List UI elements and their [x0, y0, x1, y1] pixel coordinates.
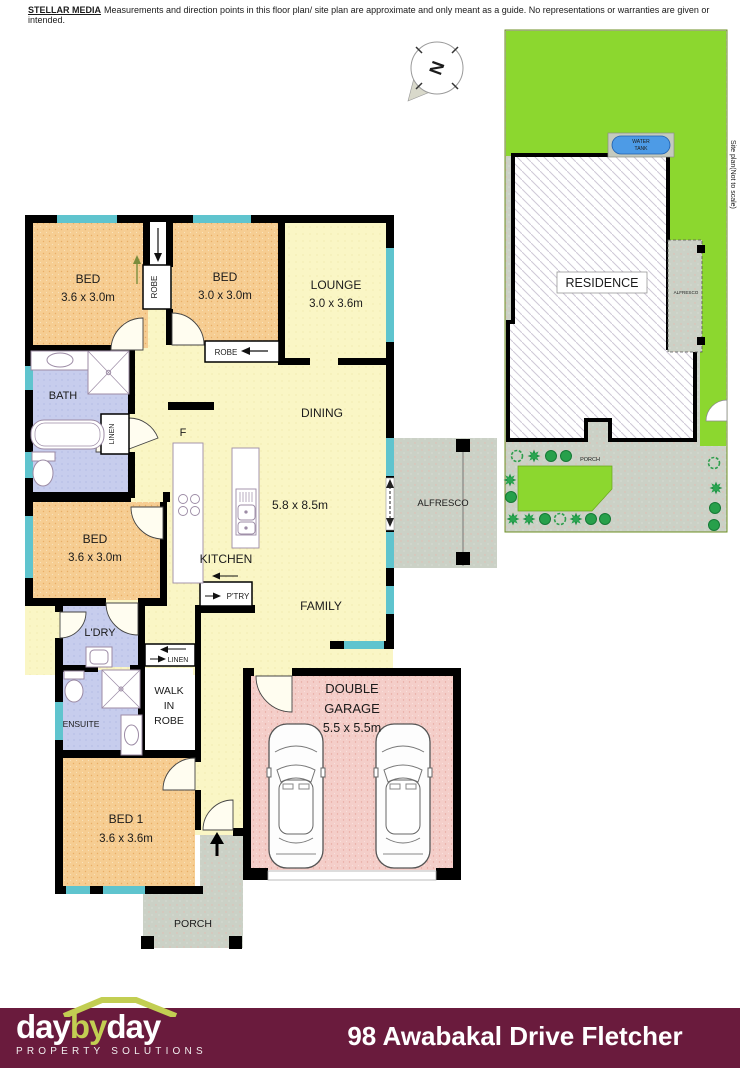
robe-label-2: ROBE	[215, 348, 238, 357]
garage-door	[268, 871, 436, 880]
wir-label-2: IN	[164, 700, 175, 712]
plant-icon	[546, 451, 557, 462]
site-residence-label: RESIDENCE	[566, 276, 639, 290]
plant-icon	[600, 514, 611, 525]
pantry-label: P'TRY	[227, 592, 250, 601]
fridge-label: F	[180, 427, 187, 439]
robe-label-1: ROBE	[150, 276, 159, 299]
logo-tagline: PROPERTY SOLUTIONS	[16, 1046, 207, 1057]
plant-icon	[561, 451, 572, 462]
garage-label-1: DOUBLE	[325, 681, 379, 696]
garage-dims: 5.5 x 5.5m	[323, 721, 381, 735]
slider-door	[386, 478, 394, 530]
family-label: FAMILY	[300, 599, 342, 613]
site-alfresco: ALFRESCO	[668, 240, 705, 352]
porch-label: PORCH	[174, 918, 212, 930]
kitchen-label: KITCHEN	[200, 552, 253, 566]
site-plan: RESIDENCE WATER TANK ALFRESCO PORCH	[501, 30, 736, 532]
wir-label-3: ROBE	[154, 715, 184, 727]
linen-label-1: LINEN	[109, 424, 116, 445]
wir-label-1: WALK	[154, 685, 183, 697]
garage-label-2: GARAGE	[324, 701, 380, 716]
water-tank-label-2: TANK	[635, 146, 649, 152]
property-address: 98 Awabakal Drive Fletcher	[290, 1021, 740, 1052]
lounge-label: LOUNGE	[311, 278, 362, 292]
bed3-dims: 3.6 x 3.0m	[68, 552, 122, 564]
plant-icon	[540, 514, 551, 525]
car-icon	[374, 724, 432, 868]
plant-icon	[586, 514, 597, 525]
site-lawn-front	[518, 466, 612, 511]
dining-label: DINING	[301, 406, 343, 420]
bed-tm-label: BED	[213, 270, 238, 284]
roof-icon	[60, 997, 190, 1017]
bed-tl-dims: 3.6 x 3.0m	[61, 292, 115, 304]
bed-tl-label: BED	[76, 272, 101, 286]
water-tank-label-1: WATER	[632, 139, 650, 145]
site-caption: Site plan(Not to scale)	[729, 140, 736, 209]
plant-icon	[506, 492, 517, 503]
linen-label-2: LINEN	[168, 657, 189, 664]
bed1-dims: 3.6 x 3.6m	[99, 833, 153, 845]
footer: daybyday PROPERTY SOLUTIONS 98 Awabakal …	[0, 1008, 740, 1068]
plant-icon	[709, 520, 720, 531]
car-icon	[267, 724, 325, 868]
floor-plan-flyer: STELLAR MEDIAMeasurements and direction …	[0, 0, 740, 1080]
agency-logo: daybyday PROPERTY SOLUTIONS	[16, 1010, 207, 1057]
lounge-dims: 3.0 x 3.6m	[309, 298, 363, 310]
bed1-label: BED 1	[109, 812, 144, 826]
ensuite-label: ENSUITE	[63, 719, 100, 729]
bath-label: BATH	[49, 390, 78, 402]
site-porch-label: PORCH	[580, 457, 600, 463]
site-residence: RESIDENCE	[508, 155, 695, 440]
laundry-label: L'DRY	[84, 627, 116, 639]
site-alfresco-label: ALFRESCO	[674, 290, 699, 295]
plant-icon	[710, 503, 721, 514]
plan-canvas: N RESIDENCE WATER TANK	[0, 0, 740, 1080]
bed3-label: BED	[83, 532, 108, 546]
alfresco-label: ALFRESCO	[417, 498, 468, 509]
floor-plan: ROBE ROBE LINEN LINEN P'TRY	[25, 215, 497, 949]
living-dims-label: 5.8 x 8.5m	[272, 498, 328, 512]
site-water-tank: WATER TANK	[608, 133, 674, 157]
bed-tm-dims: 3.0 x 3.0m	[198, 290, 252, 302]
compass-icon: N	[408, 42, 463, 101]
